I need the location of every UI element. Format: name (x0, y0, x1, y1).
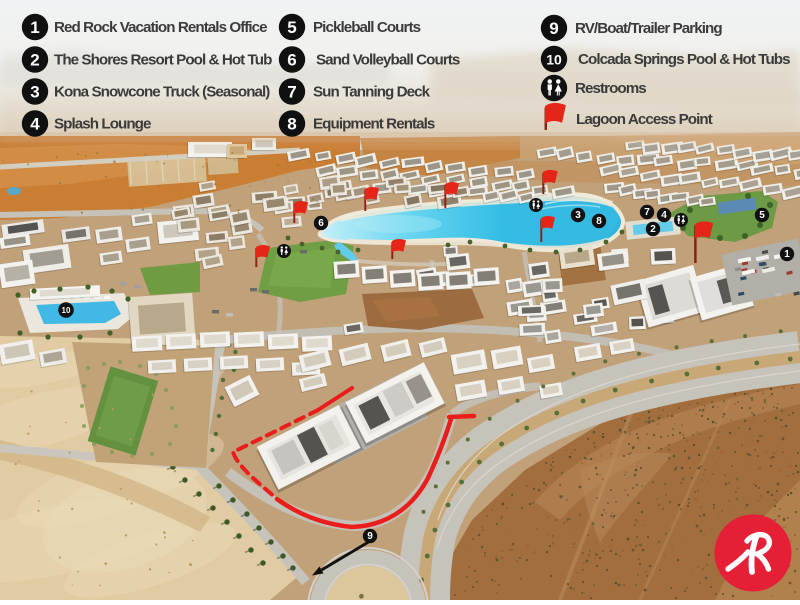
svg-text:3: 3 (575, 210, 581, 221)
svg-text:8: 8 (287, 115, 296, 134)
svg-text:4: 4 (30, 115, 40, 134)
svg-text:Red Rock Vacation Rentals Offi: Red Rock Vacation Rentals Office (54, 19, 267, 36)
svg-text:9: 9 (367, 531, 373, 542)
svg-text:2: 2 (650, 224, 656, 235)
svg-text:Equipment Rentals: Equipment Rentals (313, 116, 435, 133)
svg-text:3: 3 (30, 83, 39, 102)
svg-text:The Shores Resort Pool & Hot T: The Shores Resort Pool & Hot Tub (54, 52, 272, 69)
svg-text:10: 10 (546, 52, 562, 68)
svg-text:Kona Snowcone Truck (Seasonal): Kona Snowcone Truck (Seasonal) (54, 84, 270, 101)
svg-text:2: 2 (30, 51, 39, 70)
svg-text:9: 9 (549, 19, 558, 38)
svg-text:1: 1 (30, 18, 39, 37)
svg-text:Lagoon Access Point: Lagoon Access Point (576, 111, 713, 128)
svg-text:5: 5 (759, 210, 765, 221)
svg-text:7: 7 (644, 207, 650, 218)
svg-text:Sun Tanning Deck: Sun Tanning Deck (313, 84, 431, 101)
svg-text:Sand Volleyball Courts: Sand Volleyball Courts (316, 52, 460, 69)
svg-text:6: 6 (318, 218, 324, 229)
svg-text:10: 10 (62, 306, 71, 315)
svg-text:5: 5 (287, 18, 296, 37)
svg-text:1: 1 (784, 249, 790, 260)
svg-text:RV/Boat/Trailer Parking: RV/Boat/Trailer Parking (575, 20, 722, 37)
svg-text:Splash Lounge: Splash Lounge (54, 116, 151, 133)
svg-text:Pickleball Courts: Pickleball Courts (313, 19, 421, 36)
svg-text:4: 4 (661, 210, 667, 221)
svg-text:6: 6 (287, 51, 296, 70)
svg-text:Colcada Springs Pool & Hot Tub: Colcada Springs Pool & Hot Tubs (578, 51, 790, 68)
svg-text:7: 7 (287, 83, 296, 102)
svg-text:Restrooms: Restrooms (575, 80, 646, 97)
svg-text:8: 8 (596, 216, 602, 227)
